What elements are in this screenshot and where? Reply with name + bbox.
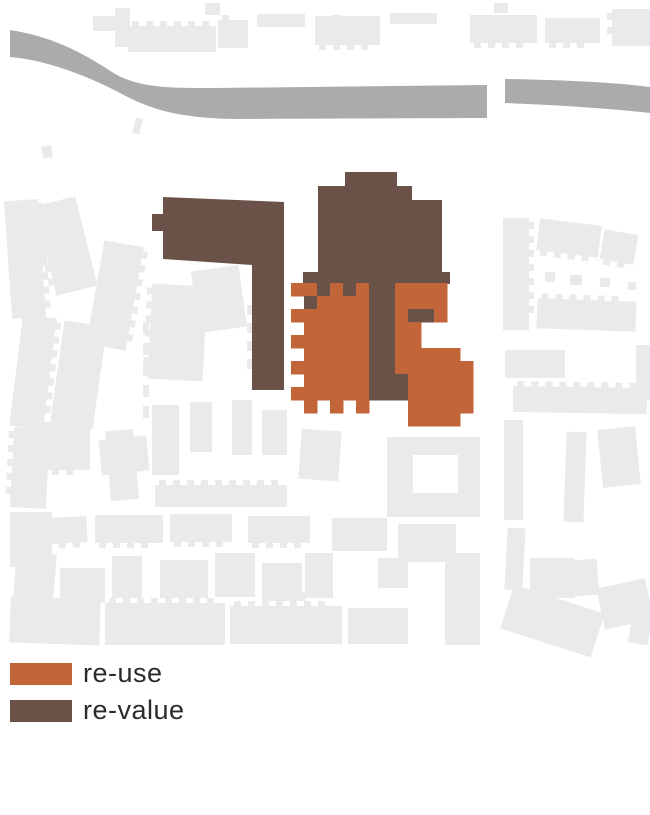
revalue-label: re-value xyxy=(83,697,185,724)
revalue-color-swatch xyxy=(10,700,72,722)
site-plan-figure: re-use re-value xyxy=(0,0,650,815)
legend-item-reuse: re-use xyxy=(10,660,185,687)
reuse-label: re-use xyxy=(83,660,163,687)
reuse-revalue-grid xyxy=(291,283,474,427)
legend-item-revalue: re-value xyxy=(10,697,185,724)
reuse-color-swatch xyxy=(10,663,72,685)
legend: re-use re-value xyxy=(10,660,185,724)
